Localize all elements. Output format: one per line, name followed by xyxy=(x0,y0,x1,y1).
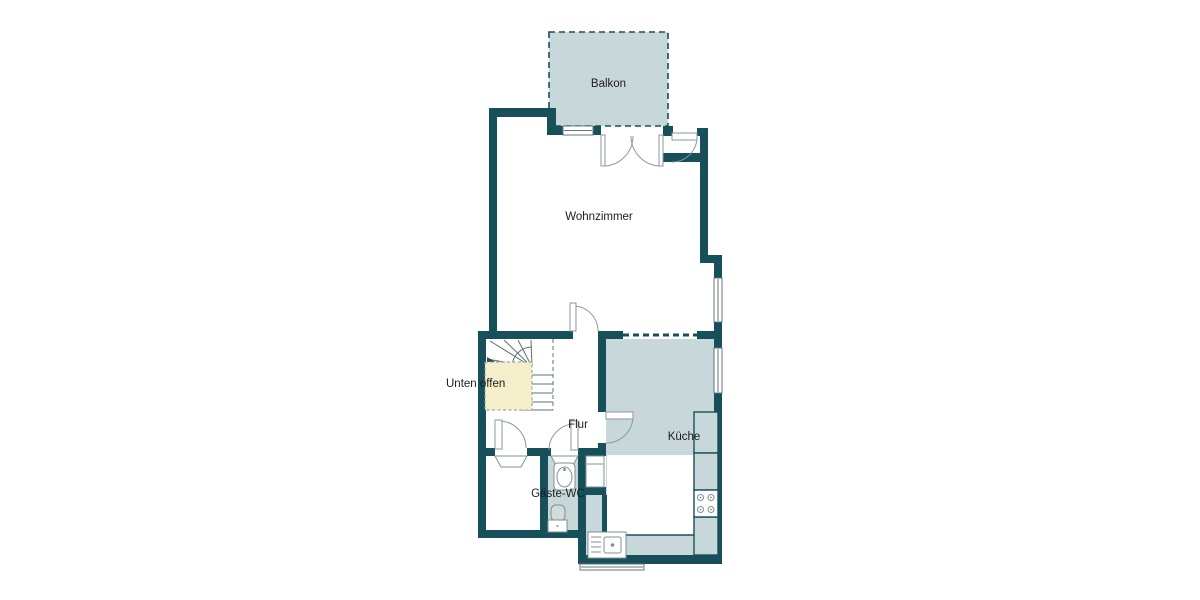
floor-plan-canvas: Balkon xyxy=(0,0,1200,600)
wall-kitchen-top-right xyxy=(697,331,722,339)
balcony-door-left-arc xyxy=(603,136,633,166)
stairs-icon xyxy=(485,339,553,410)
hall-room-door-arc xyxy=(499,421,526,448)
balcony-door-right-leaf xyxy=(659,135,663,166)
room-label-kueche: Küche xyxy=(668,431,701,443)
wall-balcony-band-b xyxy=(593,126,601,135)
stove-icon xyxy=(694,490,718,517)
burner-1-dot xyxy=(700,497,702,499)
wall-kitchen-left-lower xyxy=(598,443,606,456)
counter-right-lower xyxy=(694,517,718,555)
wall-outer-right-a xyxy=(714,255,722,278)
livingroom-hall-door-arc xyxy=(573,306,598,331)
stove-body xyxy=(694,490,718,517)
livingroom-hall-door-leaf xyxy=(570,303,576,331)
wall-kitchen-left-upper xyxy=(598,339,606,412)
wall-top xyxy=(489,108,555,117)
door-sill-left xyxy=(495,456,527,467)
room-label-balkon: Balkon xyxy=(591,78,626,90)
wall-livingroom-bottom xyxy=(478,331,573,339)
room-label-flur: Flur xyxy=(568,419,588,431)
toilet-tank xyxy=(551,505,565,521)
balcony-door-right-arc xyxy=(631,136,661,166)
balcony-area: Balkon xyxy=(549,32,668,126)
wall-hall-bottom-b xyxy=(527,448,551,456)
wall-bottom-left xyxy=(478,530,586,538)
wall-balcony-band-a xyxy=(549,126,563,135)
kitchen-inner-floor xyxy=(607,455,694,535)
burner-4-dot xyxy=(710,509,712,511)
fridge-body xyxy=(586,456,604,487)
wc-sink-icon xyxy=(554,463,575,490)
floor-plan: Balkon xyxy=(0,0,1200,600)
burner-2-dot xyxy=(710,497,712,499)
toilet-dot xyxy=(557,525,559,527)
room-label-unten-offen: Unten offen xyxy=(446,378,505,390)
kitchen-sink-icon xyxy=(588,532,626,558)
counter-right-mid xyxy=(694,453,718,490)
wall-left-upper xyxy=(489,108,497,339)
niche-door-leaf xyxy=(672,133,697,140)
burner-3-dot xyxy=(700,509,702,511)
hall-room-door-leaf xyxy=(495,420,502,449)
wall-right-upper xyxy=(700,128,708,263)
room-label-gaeste-wc: Gäste-WC xyxy=(531,488,585,500)
fridge-icon xyxy=(586,456,604,487)
wall-kitchen-top-left xyxy=(598,331,623,339)
wall-wc-right xyxy=(578,448,586,564)
room-label-wohnzimmer: Wohnzimmer xyxy=(565,211,633,223)
wall-hall-bottom-a xyxy=(478,448,495,456)
wc-sink-faucet-dot xyxy=(563,468,566,471)
sink-drain-dot xyxy=(611,543,615,547)
balcony-door-left-leaf xyxy=(601,135,605,166)
kitchen-door-leaf xyxy=(606,412,633,419)
